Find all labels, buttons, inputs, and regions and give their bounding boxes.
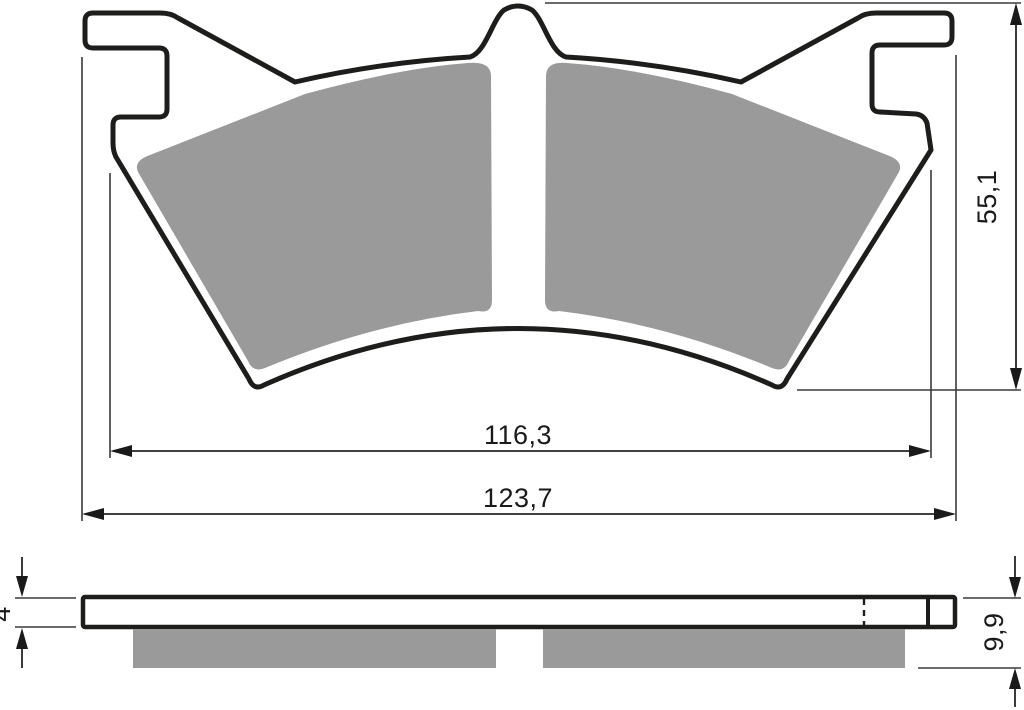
backplate-profile xyxy=(83,597,955,627)
brake-pad-technical-drawing: 116,3 123,7 55,1 4 9,9 xyxy=(0,0,1024,710)
friction-profile-right xyxy=(543,629,905,668)
dim-label-overall-thickness: 9,9 xyxy=(979,612,1009,651)
arrowhead-up-icon xyxy=(1010,3,1022,25)
dim-label-pad-height: 55,1 xyxy=(972,170,1002,225)
drawing-canvas: 116,3 123,7 55,1 4 9,9 xyxy=(0,0,1024,710)
side-view xyxy=(83,597,955,668)
arrowhead-down-icon xyxy=(16,576,28,597)
dim-label-backplate-thickness: 4 xyxy=(0,606,16,622)
arrowhead-left-icon xyxy=(82,508,104,520)
arrowhead-down-icon xyxy=(1010,368,1022,390)
arrowhead-up-icon xyxy=(1009,668,1021,689)
friction-profile-left xyxy=(133,629,496,668)
arrowhead-right-icon xyxy=(909,445,931,457)
arrowhead-right-icon xyxy=(934,508,956,520)
top-view xyxy=(85,6,952,387)
dim-label-inner-width: 116,3 xyxy=(484,420,552,450)
arrowhead-left-icon xyxy=(110,445,132,457)
arrowhead-down-icon xyxy=(1009,577,1021,598)
arrowhead-up-icon xyxy=(16,628,28,649)
dim-label-overall-width: 123,7 xyxy=(483,483,553,513)
